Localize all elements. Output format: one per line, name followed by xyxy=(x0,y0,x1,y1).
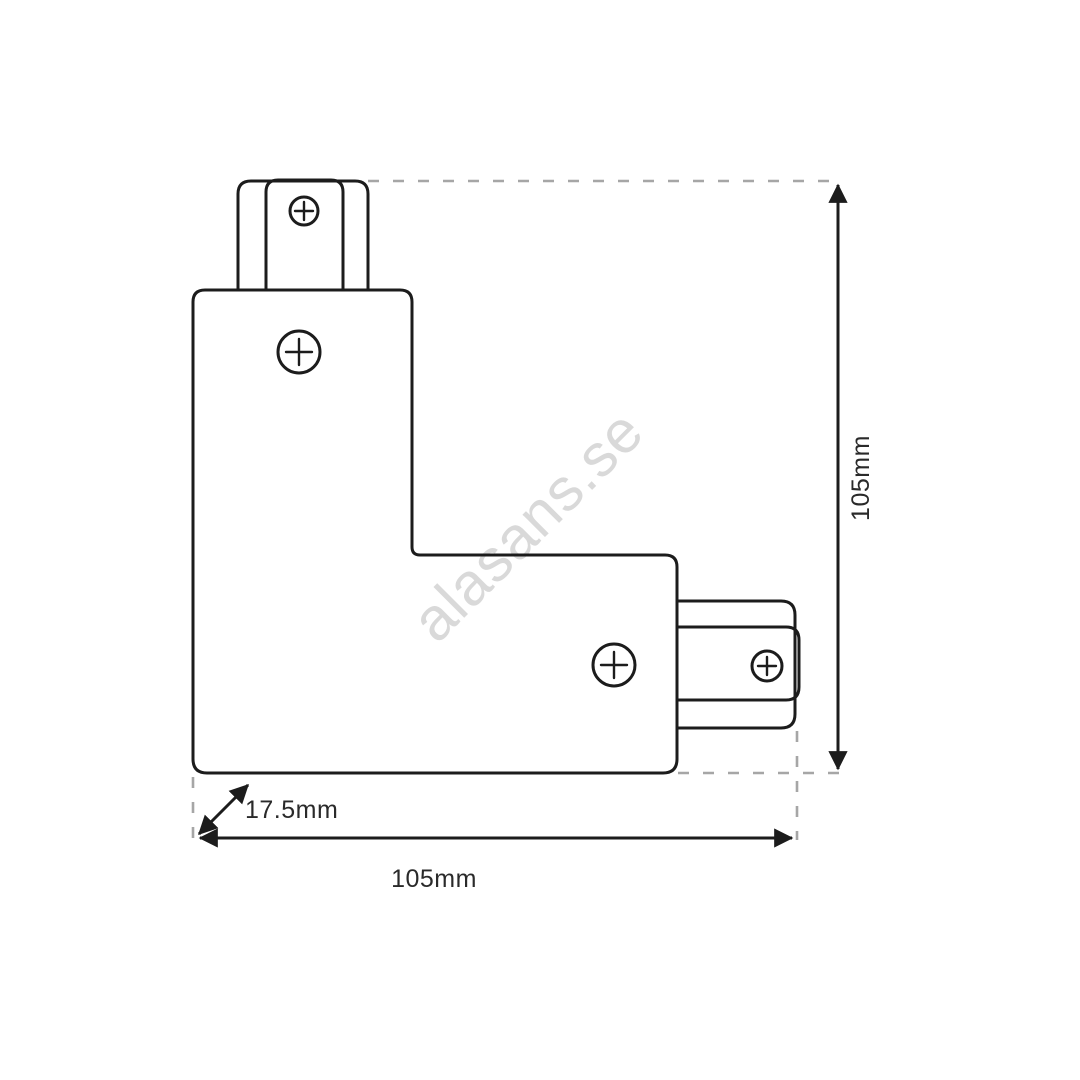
height-dimension-label: 105mm xyxy=(847,435,875,521)
connector-body xyxy=(193,290,677,773)
screw-icon-body-top xyxy=(278,331,320,373)
watermark-text: alasans.se xyxy=(399,397,656,654)
width-dimension-label: 105mm xyxy=(391,865,477,893)
screw-icon-top-tab xyxy=(290,197,318,225)
screw-icon-body-right xyxy=(593,644,635,686)
technical-drawing: alasans.se xyxy=(0,0,1080,1080)
depth-dimension-label: 17.5mm xyxy=(245,796,338,824)
right-connector-tab-outer xyxy=(677,601,795,728)
depth-dimension-line xyxy=(199,785,248,834)
screw-icon-right-tab xyxy=(752,651,782,681)
connector-outline xyxy=(193,180,799,773)
screws xyxy=(278,197,782,686)
drawing-canvas: alasans.se xyxy=(0,0,1080,1080)
